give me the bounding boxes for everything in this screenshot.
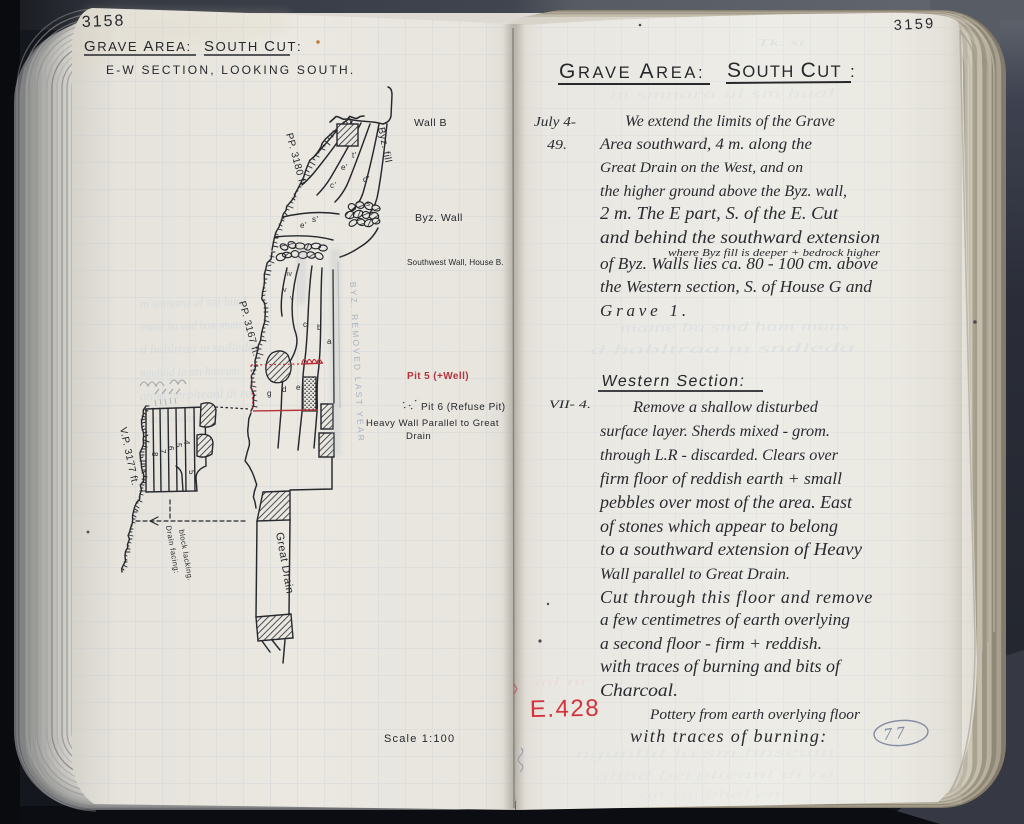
- svg-text:e': e': [300, 221, 307, 230]
- svg-text:c': c': [330, 181, 337, 190]
- svg-text:Tk. st: Tk. st: [757, 38, 805, 49]
- svg-text:VII- 4.: VII- 4.: [549, 399, 591, 411]
- svg-text:and behind the southward exten: and behind the southward extension: [600, 227, 880, 247]
- svg-text:7: 7: [158, 449, 167, 454]
- svg-text:Drain: Drain: [406, 431, 431, 442]
- svg-text:mame bu smd ham muns: mame bu smd ham muns: [140, 316, 242, 334]
- svg-text::: :: [850, 62, 855, 81]
- svg-text:g: g: [267, 389, 272, 398]
- svg-text:m smnara ul sm hual: m smnara ul sm hual: [140, 293, 247, 311]
- svg-text:Cut through this floor and rem: Cut through this floor and remove: [600, 587, 873, 607]
- svg-text:d habltraa m sndleda: d habltraa m sndleda: [590, 340, 856, 357]
- svg-text:v: v: [283, 287, 287, 294]
- svg-text:to a southward extension of He: to a southward extension of Heavy: [600, 539, 862, 559]
- svg-text:ahnd berplteanl di ra: ahnd berplteanl di ra: [595, 766, 836, 783]
- svg-text:E.428: E.428: [530, 695, 601, 723]
- svg-text:Scale 1:100: Scale 1:100: [384, 733, 455, 745]
- svg-text:8: 8: [150, 452, 159, 457]
- svg-text:Area southward, 4 m. along the: Area southward, 4 m. along the: [599, 134, 812, 153]
- svg-text:July 4-: July 4-: [534, 114, 577, 129]
- svg-text:Remove a shallow disturbed: Remove a shallow disturbed: [632, 399, 819, 416]
- svg-text:where Byz fill is deeper + bed: where Byz fill is deeper + bedrock highe…: [668, 247, 881, 259]
- svg-text:ml nr: ml nr: [534, 674, 591, 689]
- svg-text:2 m. The E part, S. of the: 2 m. The E part, S. of the E. Cut: [600, 203, 839, 223]
- svg-text:with traces of burning and bit: with traces of burning and bits of: [600, 656, 842, 676]
- svg-text:6: 6: [166, 446, 175, 451]
- svg-text:Wall B: Wall B: [414, 117, 447, 129]
- svg-text:e': e': [341, 163, 348, 172]
- svg-text:GRAVE AREA:: GRAVE AREA:: [84, 38, 192, 55]
- svg-text:Grave 1.: Grave 1.: [600, 301, 690, 320]
- svg-text:d: d: [282, 385, 287, 394]
- svg-text:5: 5: [187, 470, 196, 475]
- svg-text:GRAVE AREA:: GRAVE AREA:: [559, 60, 705, 83]
- svg-text:Western Section:: Western Section:: [600, 372, 746, 390]
- svg-text:SOUTH CUT: SOUTH CUT: [204, 38, 297, 55]
- svg-text:3158: 3158: [82, 12, 126, 31]
- svg-text:d': d': [363, 175, 370, 184]
- svg-text:ahnd berplteanl di ra: ahnd berplteanl di ra: [140, 385, 253, 403]
- svg-text:d habltraa m sndleda: d habltraa m sndleda: [140, 339, 256, 357]
- svg-text:with traces of burning:: with traces of burning:: [630, 726, 828, 746]
- svg-text:mame bu smd ham muns: mame bu smd ham muns: [620, 318, 850, 335]
- svg-text:b: b: [317, 323, 322, 332]
- svg-text:pebbles over most of the area.: pebbles over most of the area. East: [598, 492, 853, 512]
- svg-text:3159: 3159: [893, 16, 936, 34]
- svg-text:Pit 6 (Refuse Pit): Pit 6 (Refuse Pit): [421, 402, 506, 413]
- svg-text:Pit 5 (+Well): Pit 5 (+Well): [407, 371, 469, 382]
- svg-text:49.: 49.: [547, 137, 567, 152]
- svg-text:We extend the limits of the Gr: We extend the limits of the Grave: [625, 113, 835, 130]
- svg-text:Pottery from earth overlying f: Pottery from earth overlying floor: [649, 707, 860, 723]
- svg-text:Heavy Wall Parallel to Great: Heavy Wall Parallel to Great: [366, 418, 499, 429]
- svg-text:4: 4: [182, 440, 191, 445]
- svg-text:the higher ground above the By: the higher ground above the Byz. wall,: [600, 183, 847, 200]
- svg-text:a: a: [327, 337, 332, 346]
- svg-text:s': s': [312, 215, 319, 224]
- svg-text:ngunlid lo sm hnseum: ngunlid lo sm hnseum: [575, 744, 835, 761]
- svg-text:7 7: 7 7: [882, 723, 907, 744]
- svg-text:v: v: [290, 295, 294, 302]
- svg-text:an sm bhal en: an sm bhal en: [640, 786, 780, 802]
- svg-text:Wall parallel to Great Drain.: Wall parallel to Great Drain.: [600, 566, 790, 583]
- svg-text:firm floor of reddish earth +: firm floor of reddish earth + small: [600, 469, 842, 488]
- svg-text:Charcoal.: Charcoal.: [600, 680, 678, 700]
- svg-text:a few centimetres of earth ove: a few centimetres of earth overlying: [600, 610, 850, 629]
- svg-text:5: 5: [174, 443, 183, 448]
- svg-text:m smnara ul sm hual: m smnara ul sm hual: [610, 85, 836, 102]
- svg-text:through L.R - discarded. Clear: through L.R - discarded. Clears over: [600, 447, 839, 464]
- svg-text:SOUTH CUT: SOUTH CUT: [727, 59, 843, 82]
- svg-text:Byz. Wall: Byz. Wall: [415, 212, 463, 224]
- svg-text:the Western section, S. of Hou: the Western section, S. of House G and: [600, 277, 873, 296]
- svg-text:of stones which appear to belo: of stones which appear to belong: [600, 516, 838, 536]
- svg-text::: :: [297, 39, 301, 54]
- svg-text:Great Drain on the West, and o: Great Drain on the West, and on: [600, 159, 803, 176]
- svg-text:e: e: [296, 383, 301, 392]
- svg-text:Southwest Wall, House B.: Southwest Wall, House B.: [407, 258, 504, 267]
- svg-text:E-W SECTION, LOOKING SOUTH.: E-W SECTION, LOOKING SOUTH.: [106, 63, 355, 77]
- svg-text:ngunlid lo sm hnseum: ngunlid lo sm hnseum: [140, 362, 240, 380]
- svg-text:s: s: [366, 199, 371, 208]
- svg-text:c: c: [303, 320, 308, 329]
- svg-text:surface layer. Sherds mixed -: surface layer. Sherds mixed - grom.: [600, 423, 830, 440]
- svg-text:t': t': [352, 151, 357, 160]
- svg-text:a second floor - firm + reddis: a second floor - firm + reddish.: [600, 634, 822, 653]
- svg-text:iv: iv: [287, 271, 293, 278]
